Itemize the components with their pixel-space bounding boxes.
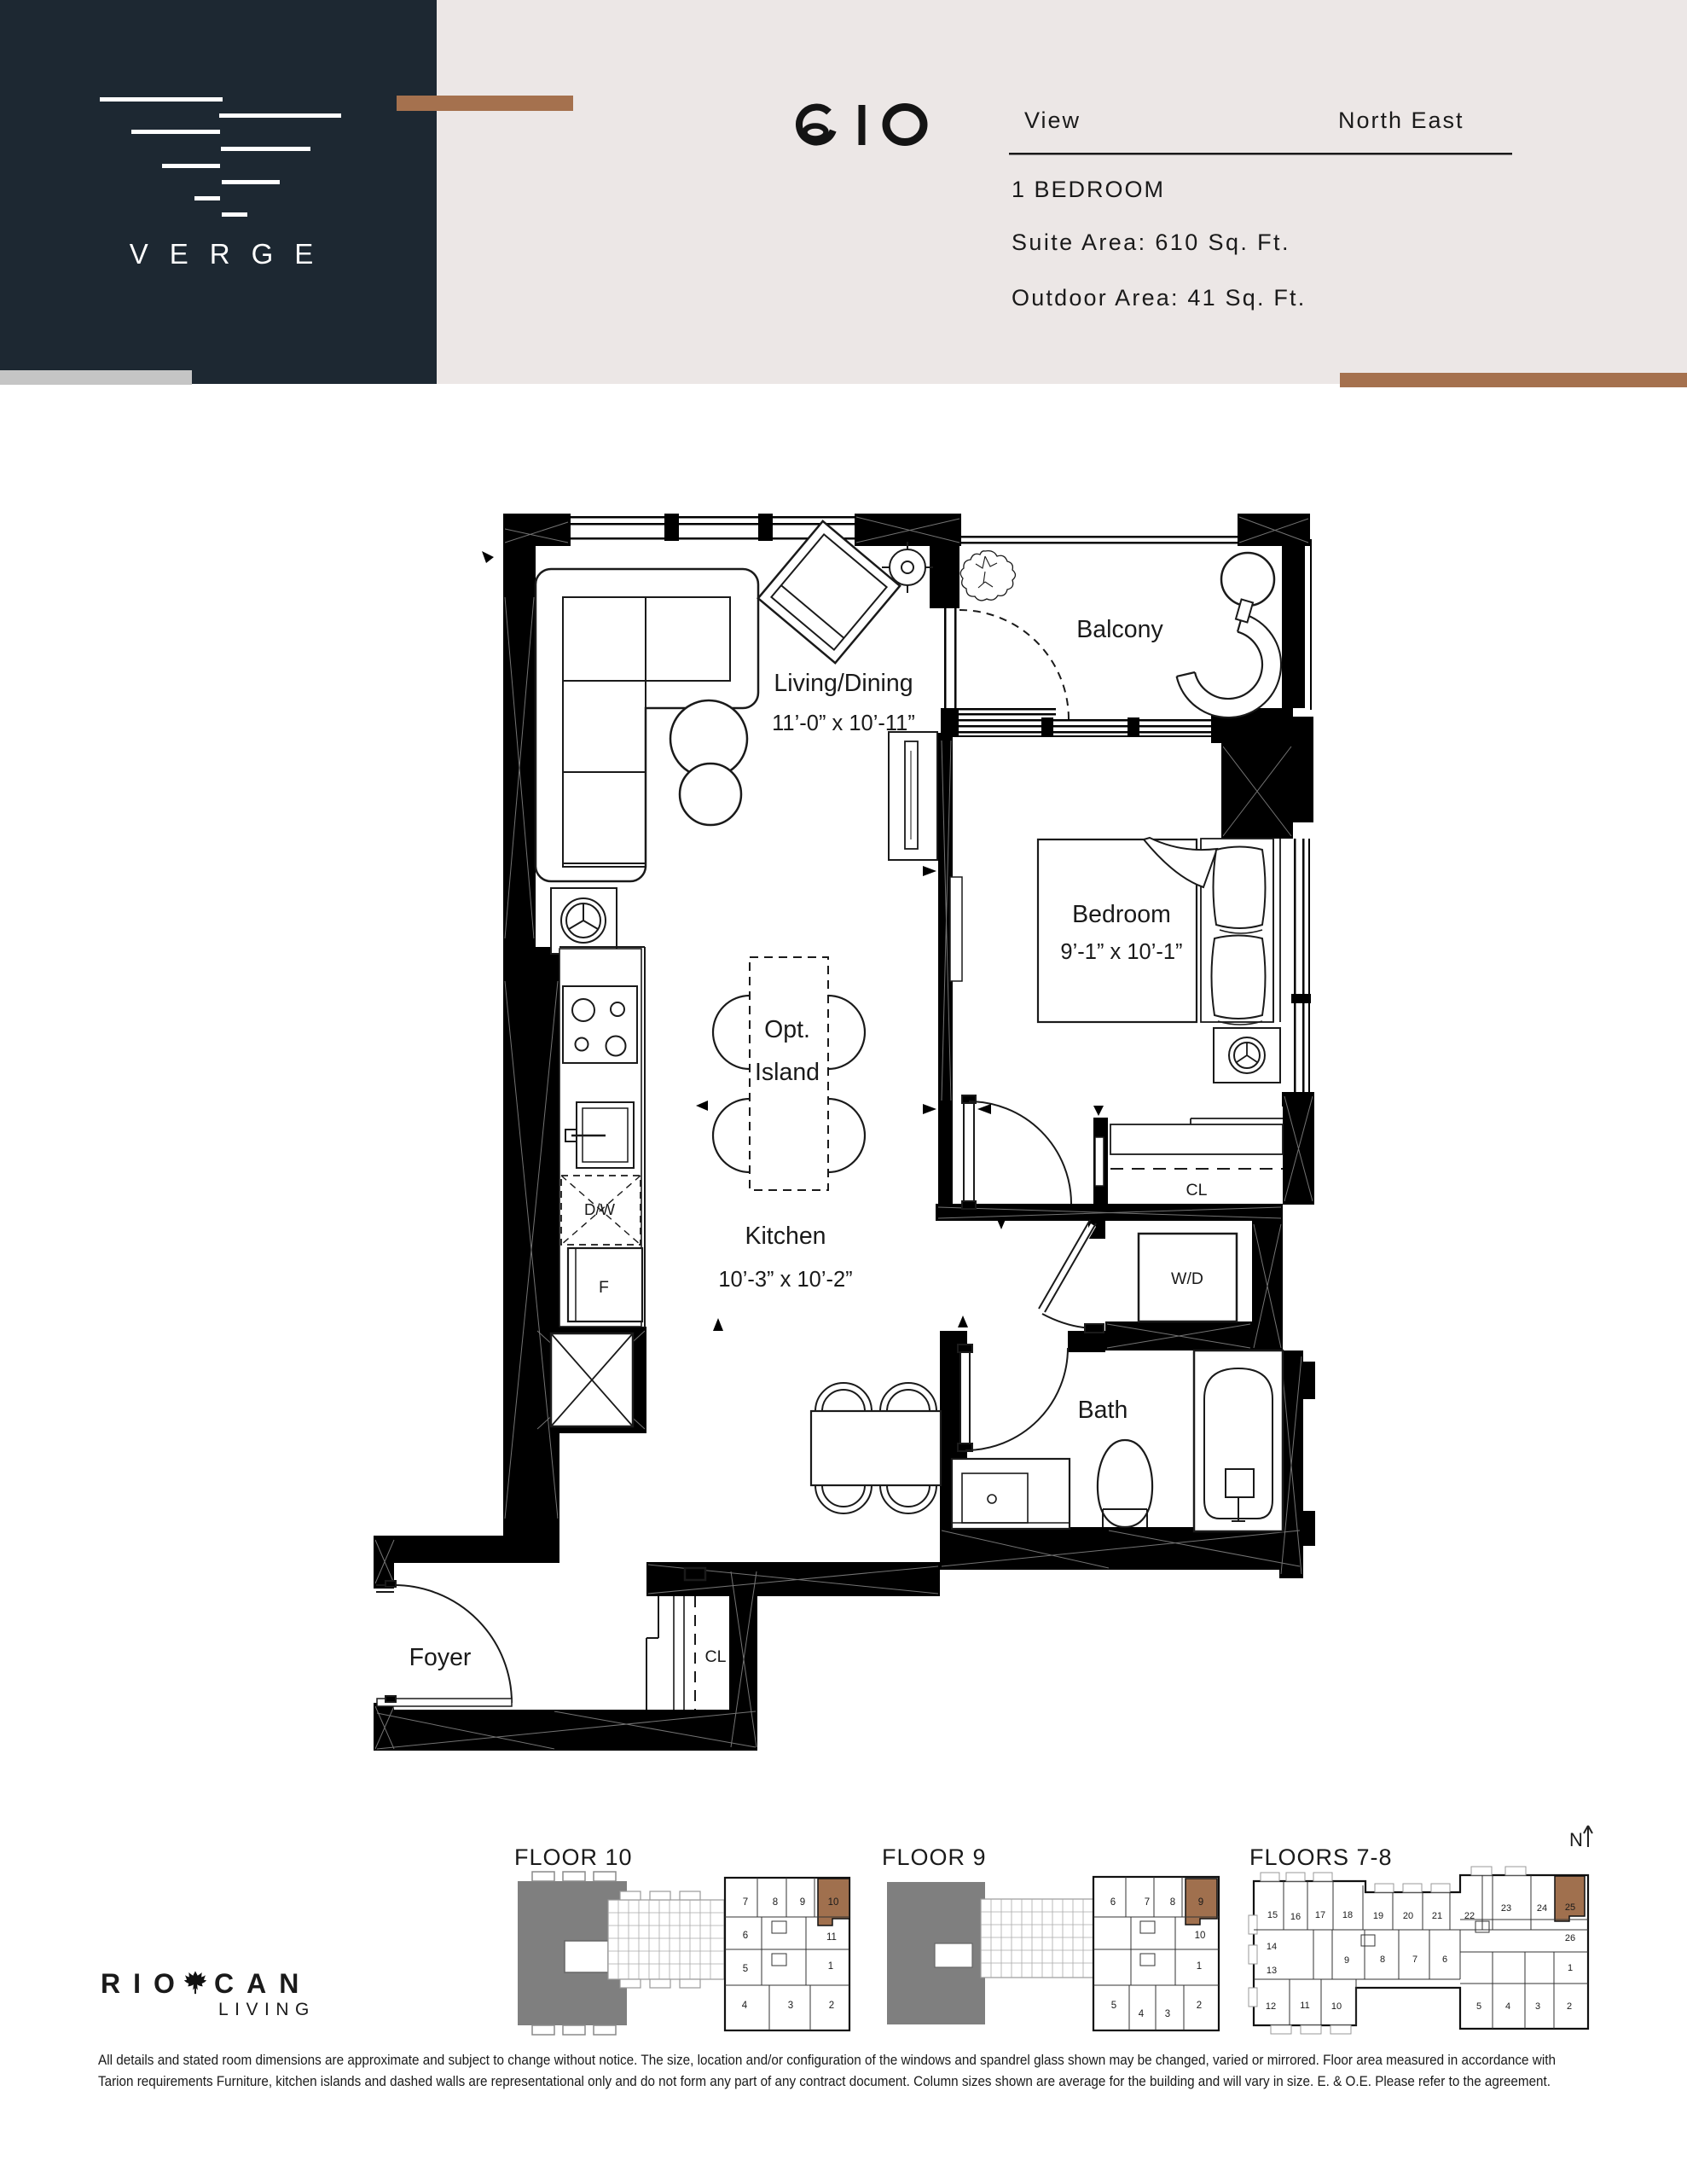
svg-text:North East: North East [1338, 107, 1464, 133]
svg-text:Opt.: Opt. [764, 1016, 810, 1043]
svg-text:Tarion requirements Furniture,: Tarion requirements Furniture, kitchen i… [98, 2073, 1551, 2089]
svg-text:11: 11 [826, 1932, 837, 1943]
svg-text:Island: Island [755, 1059, 820, 1086]
svg-text:24: 24 [1537, 1903, 1547, 1914]
svg-text:3: 3 [1535, 2001, 1540, 2012]
svg-text:9: 9 [1198, 1897, 1203, 1908]
svg-text:9: 9 [800, 1897, 805, 1908]
svg-text:10: 10 [828, 1897, 839, 1908]
svg-text:15: 15 [1267, 1910, 1278, 1920]
svg-text:CL: CL [705, 1647, 727, 1666]
svg-text:16: 16 [1290, 1912, 1301, 1922]
svg-text:10: 10 [1331, 2001, 1342, 2012]
svg-text:11: 11 [1300, 2001, 1309, 2011]
svg-text:3: 3 [1165, 2009, 1170, 2019]
svg-text:1 BEDROOM: 1 BEDROOM [1012, 177, 1165, 202]
svg-text:4: 4 [1139, 2009, 1145, 2019]
svg-text:9: 9 [1344, 1955, 1349, 1966]
svg-text:LIVING: LIVING [218, 2000, 316, 2019]
svg-text:Outdoor Area: 41 Sq. Ft.: Outdoor Area: 41 Sq. Ft. [1012, 285, 1306, 311]
svg-text:Kitchen: Kitchen [745, 1223, 826, 1250]
svg-text:RIO: RIO [101, 1968, 188, 1999]
svg-text:7: 7 [1412, 1955, 1417, 1965]
svg-text:FLOOR 10: FLOOR 10 [514, 1844, 633, 1870]
svg-text:4: 4 [1505, 2001, 1510, 2012]
svg-text:23: 23 [1501, 1903, 1511, 1914]
svg-text:10: 10 [1195, 1931, 1206, 1941]
svg-text:6: 6 [1110, 1897, 1116, 1908]
svg-text:1: 1 [1568, 1963, 1573, 1973]
svg-text:FLOOR 9: FLOOR 9 [882, 1844, 987, 1870]
svg-text:View: View [1024, 107, 1081, 133]
svg-text:VERGE: VERGE [130, 238, 335, 270]
svg-text:6: 6 [743, 1931, 748, 1941]
svg-text:14: 14 [1267, 1942, 1277, 1952]
svg-text:1: 1 [828, 1961, 833, 1972]
svg-text:17: 17 [1315, 1910, 1325, 1920]
svg-text:9’-1” x 10’-1”: 9’-1” x 10’-1” [1060, 940, 1182, 964]
svg-text:Bath: Bath [1078, 1397, 1128, 1424]
svg-text:8: 8 [1380, 1955, 1385, 1965]
svg-text:FLOORS 7-8: FLOORS 7-8 [1249, 1844, 1393, 1870]
svg-text:5: 5 [1111, 2001, 1116, 2011]
svg-text:CAN: CAN [214, 1968, 311, 1999]
svg-text:20: 20 [1403, 1911, 1413, 1921]
svg-text:W/D: W/D [1171, 1269, 1203, 1288]
svg-text:8: 8 [773, 1897, 778, 1908]
svg-text:1: 1 [1197, 1961, 1202, 1972]
svg-text:7: 7 [743, 1897, 748, 1908]
svg-text:26: 26 [1565, 1933, 1575, 1943]
svg-text:2: 2 [829, 2001, 834, 2011]
svg-text:19: 19 [1373, 1911, 1383, 1921]
svg-text:22: 22 [1464, 1911, 1475, 1921]
svg-text:N: N [1569, 1829, 1583, 1850]
svg-text:12: 12 [1266, 2001, 1276, 2012]
svg-text:D/W: D/W [584, 1200, 616, 1218]
svg-text:2: 2 [1567, 2001, 1572, 2012]
svg-text:10’-3” x 10’-2”: 10’-3” x 10’-2” [718, 1268, 852, 1292]
svg-text:5: 5 [743, 1964, 748, 1974]
svg-text:18: 18 [1342, 1910, 1353, 1920]
svg-text:Balcony: Balcony [1076, 616, 1163, 643]
svg-text:13: 13 [1267, 1966, 1277, 1976]
svg-text:11’-0” x 10’-11”: 11’-0” x 10’-11” [772, 712, 915, 735]
svg-text:Living/Dining: Living/Dining [774, 670, 913, 697]
svg-text:25: 25 [1565, 1902, 1575, 1913]
svg-text:4: 4 [742, 2001, 748, 2011]
svg-text:Suite Area: 610 Sq. Ft.: Suite Area: 610 Sq. Ft. [1012, 229, 1290, 255]
svg-text:5: 5 [1476, 2001, 1481, 2012]
svg-text:CL: CL [1186, 1181, 1208, 1199]
svg-text:8: 8 [1170, 1897, 1175, 1908]
svg-text:2: 2 [1197, 2001, 1202, 2011]
svg-text:3: 3 [788, 2001, 793, 2011]
svg-text:Foyer: Foyer [409, 1644, 472, 1671]
svg-text:21: 21 [1432, 1911, 1442, 1921]
svg-text:Bedroom: Bedroom [1072, 901, 1171, 928]
svg-text:F: F [599, 1278, 609, 1297]
svg-text:All details and stated room di: All details and stated room dimensions a… [98, 2052, 1556, 2068]
svg-text:7: 7 [1145, 1897, 1150, 1908]
svg-text:6: 6 [1442, 1955, 1447, 1965]
